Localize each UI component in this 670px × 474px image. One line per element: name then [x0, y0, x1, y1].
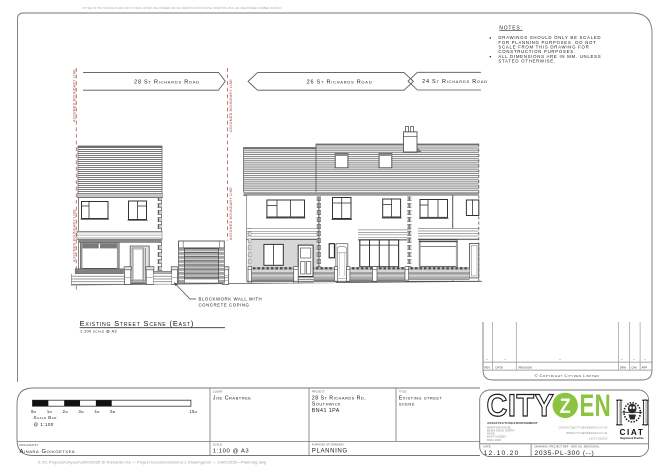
svg-text:10m: 10m	[189, 409, 197, 414]
svg-text:STATED OTHERWISE.: STATED OTHERWISE.	[498, 59, 555, 64]
svg-text:REV: REV	[485, 365, 491, 369]
svg-text:CONTACT@CITYZENDESIGN.CO.UK: CONTACT@CITYZENDESIGN.CO.UK	[558, 425, 607, 429]
svg-text:24 St Richards Road: 24 St Richards Road	[422, 79, 488, 85]
svg-text:1m: 1m	[47, 409, 53, 414]
svg-text:REVISION: REVISION	[519, 365, 533, 369]
svg-text:DESIGNED BY:: DESIGNED BY:	[20, 443, 40, 447]
svg-text:EN: EN	[580, 387, 612, 423]
svg-text:BLOCKWORK WALL WITH: BLOCKWORK WALL WITH	[199, 297, 263, 302]
svg-text:PROJECT:: PROJECT:	[312, 390, 326, 394]
svg-text:Existing street: Existing street	[399, 395, 443, 401]
svg-text:28 St Richards Road: 28 St Richards Road	[134, 79, 200, 85]
svg-text:Registered Practice: Registered Practice	[620, 437, 644, 440]
svg-text:Southwick: Southwick	[312, 402, 341, 408]
svg-text:ASSUMED BOUNDARY LINE: ASSUMED BOUNDARY LINE	[73, 209, 77, 262]
svg-text:DRAWING- PROJECT REF - DRG NO.: DRAWING- PROJECT REF - DRG NO. (REVISION…	[535, 444, 600, 448]
svg-text:BN41 1PA: BN41 1PA	[312, 408, 340, 414]
svg-text:PLANNING: PLANNING	[312, 447, 348, 454]
svg-text:3m: 3m	[79, 409, 85, 414]
svg-text:1:100 scale @ A3: 1:100 scale @ A3	[80, 328, 117, 333]
svg-text:0m: 0m	[31, 409, 37, 414]
svg-text:2035-PL-300 (--): 2035-PL-300 (--)	[535, 450, 595, 457]
svg-text:PURPOSE OF DRAWING:: PURPOSE OF DRAWING:	[312, 443, 345, 447]
svg-text:ENVIRONMENT: ENVIRONMENT	[514, 421, 538, 425]
svg-text:© Copyright Cityzen Limited: © Copyright Cityzen Limited	[535, 374, 600, 378]
svg-text:WWW.CITYZENDESIGN.CO.UK: WWW.CITYZENDESIGN.CO.UK	[566, 431, 607, 435]
svg-text:SCALE:: SCALE:	[213, 443, 223, 447]
svg-text:Z: Z	[560, 395, 571, 419]
svg-text:2m: 2m	[63, 409, 69, 414]
svg-text:12.10.20: 12.10.20	[484, 450, 520, 457]
svg-text:ASSUMED BOUNDARY LINE: ASSUMED BOUNDARY LINE	[73, 69, 77, 122]
svg-text:5m: 5m	[110, 409, 116, 414]
svg-text:BN41 1WR: BN41 1WR	[487, 439, 501, 442]
svg-text:ASSUMED BOUNDARY LINE: ASSUMED BOUNDARY LINE	[229, 187, 233, 240]
svg-text:CONCRETE COPING: CONCRETE COPING	[199, 303, 250, 308]
svg-text:CITY: CITY	[487, 388, 555, 424]
svg-text:Z:\01 Projects\Cityzen\2000\20: Z:\01 Projects\Cityzen\2000\2035 St Rich…	[38, 460, 266, 465]
svg-text:@ 1:100: @ 1:100	[34, 422, 54, 427]
svg-text:CITYZEN IS THE TRADING NAME FO: CITYZEN IS THE TRADING NAME FOR CITYZEN …	[82, 7, 282, 10]
svg-text:ARCHITECTURE: ARCHITECTURE	[487, 421, 513, 425]
svg-text:28 St Richards Rd.: 28 St Richards Rd.	[312, 395, 366, 401]
svg-text:Existing Street Scene (East): Existing Street Scene (East)	[80, 319, 195, 328]
svg-text:NOTES:: NOTES:	[499, 25, 522, 31]
svg-text:01273 913013: 01273 913013	[589, 437, 608, 441]
svg-text:CIAT: CIAT	[620, 428, 645, 437]
svg-text:APP: APP	[642, 365, 648, 369]
svg-text:Ainara Goikoetxea: Ainara Goikoetxea	[20, 449, 76, 455]
svg-text:DRN: DRN	[620, 365, 626, 369]
svg-text:CHK: CHK	[631, 365, 637, 369]
svg-text:TITLE:: TITLE:	[399, 390, 408, 394]
svg-text:4m: 4m	[94, 409, 100, 414]
svg-text:DATE:: DATE:	[484, 444, 492, 448]
svg-text:Joe Crabtree: Joe Crabtree	[213, 395, 252, 401]
svg-text:26 St Richards Road: 26 St Richards Road	[307, 79, 373, 85]
svg-text:ASSUMED BOUNDARY LINE: ASSUMED BOUNDARY LINE	[229, 79, 233, 132]
svg-text:1:100 @ A3: 1:100 @ A3	[213, 449, 250, 455]
svg-text:Scale Bar: Scale Bar	[34, 415, 58, 420]
svg-text:CLIENT:: CLIENT:	[213, 390, 224, 394]
svg-text:DATE: DATE	[496, 365, 503, 369]
svg-text:scene: scene	[399, 402, 415, 408]
